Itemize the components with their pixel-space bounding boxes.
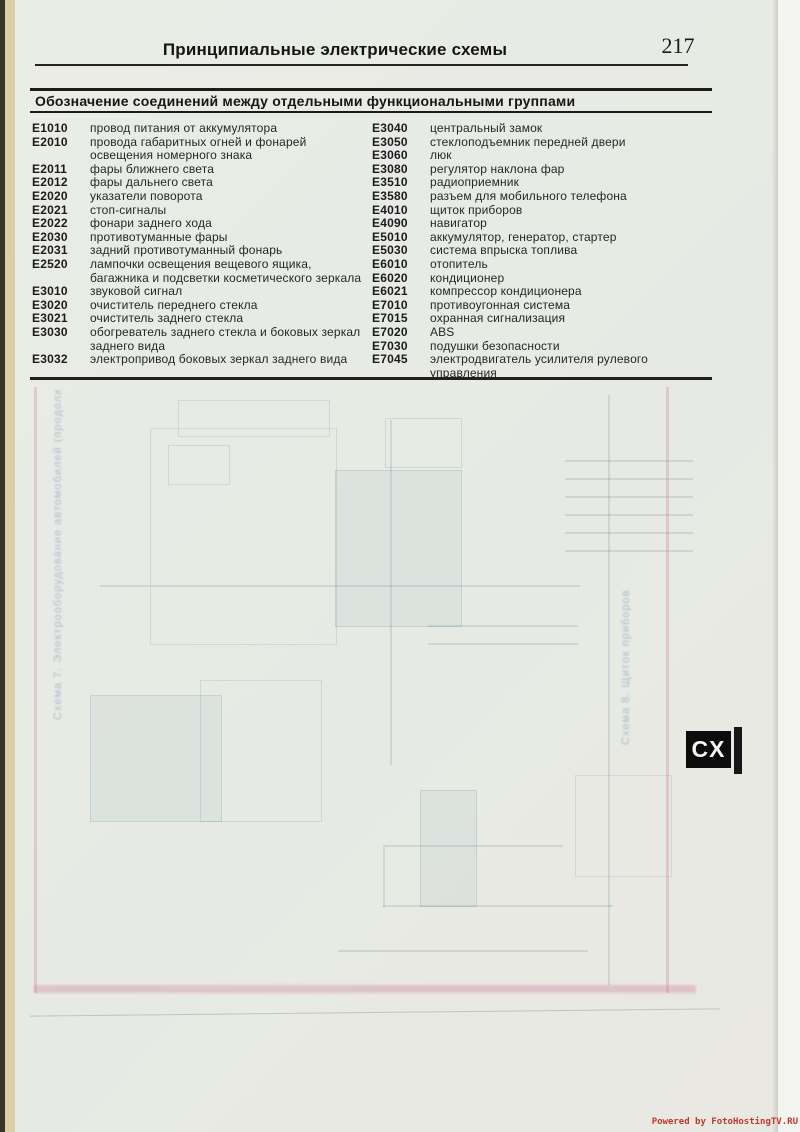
ghost-wire [390,420,392,765]
ghost-wire [565,514,693,516]
connection-description: фары ближнего света [90,163,366,177]
connection-code: E7020 [372,326,430,340]
table-row: E2022фонари заднего хода [32,217,366,231]
table-row: E3030обогреватель заднего стекла и боков… [32,326,366,353]
connection-description: радиоприемник [430,176,712,190]
table-row: E2030противотуманные фары [32,231,366,245]
table-row: E5010аккумулятор, генератор, стартер [372,231,712,245]
section-divider-top [30,88,712,91]
connection-code: E2012 [32,176,90,190]
connection-description: кондиционер [430,272,712,286]
table-row: E5030система впрыска топлива [372,244,712,258]
ghost-vertical-text-right: Схема 8. Щиток приборов [620,555,632,745]
table-row: E3580разъем для мобильного телефона [372,190,712,204]
page-number: 217 [648,33,708,59]
connection-description: очиститель заднего стекла [90,312,366,326]
connection-code: E3580 [372,190,430,204]
connection-code: E7010 [372,299,430,313]
connection-legend-table: E1010провод питания от аккумулятораE2010… [32,122,712,380]
section-title: Обозначение соединений между отдельными … [35,93,711,109]
ghost-wire [383,905,613,907]
table-row: E7030подушки безопасности [372,340,712,354]
ghost-wire [383,847,385,907]
bleedthrough-schematic: Схема 7. Электрооборудование автомобилей… [28,385,720,1013]
legend-divider-bottom [30,377,712,380]
connection-code: E2030 [32,231,90,245]
connection-code: E3040 [372,122,430,136]
connection-description: очиститель переднего стекла [90,299,366,313]
ghost-wire [565,550,693,552]
table-row: E6021компрессор кондиционера [372,285,712,299]
connection-code: E3510 [372,176,430,190]
table-row: E3060люк [372,149,712,163]
connection-description: фонари заднего хода [90,217,366,231]
table-row: E3032электропривод боковых зеркал заднег… [32,353,366,367]
legend-column-left: E1010провод питания от аккумулятораE2010… [32,122,366,380]
connection-description: провода габаритных огней и фонарей освещ… [90,136,366,163]
connection-code: E2020 [32,190,90,204]
table-row: E2010провода габаритных огней и фонарей … [32,136,366,163]
ghost-wire [338,950,588,952]
connection-description: электропривод боковых зеркал заднего вид… [90,353,366,367]
connection-code: E2010 [32,136,90,163]
connection-description: навигатор [430,217,712,231]
ghost-frame-left [34,387,37,993]
ghost-box [385,418,462,468]
connection-description: охранная сигнализация [430,312,712,326]
table-row: E2012фары дальнего света [32,176,366,190]
ghost-wire [565,532,693,534]
connection-description: ABS [430,326,712,340]
connection-description: разъем для мобильного телефона [430,190,712,204]
ghost-box [335,470,462,627]
connection-code: E2011 [32,163,90,177]
connection-code: E3032 [32,353,90,367]
ghost-vertical-text-left: Схема 7. Электрооборудование автомобилей… [52,390,64,720]
connection-code: E3010 [32,285,90,299]
connection-description: задний противотуманный фонарь [90,244,366,258]
header-divider [35,64,688,66]
ghost-wire [608,395,610,985]
table-row: E3040центральный замок [372,122,712,136]
connection-code: E5010 [372,231,430,245]
ghost-wire [383,845,563,847]
scanned-manual-page: Принципиальные электрические схемы 217 О… [0,0,800,1132]
connection-code: E3050 [372,136,430,150]
ghost-frame-bottom [34,985,696,993]
connection-code: E3020 [32,299,90,313]
section-divider-bottom [30,111,712,113]
connection-code: E2022 [32,217,90,231]
table-row: E7020ABS [372,326,712,340]
table-row: E3050стеклоподъемник передней двери [372,136,712,150]
table-row: E4010щиток приборов [372,204,712,218]
table-row: E2020указатели поворота [32,190,366,204]
ghost-box [575,775,672,877]
table-row: E7010противоугонная система [372,299,712,313]
table-row: E3021очиститель заднего стекла [32,312,366,326]
connection-description: обогреватель заднего стекла и боковых зе… [90,326,366,353]
connection-code: E2021 [32,204,90,218]
table-row: E3010звуковой сигнал [32,285,366,299]
table-row: E3020очиститель переднего стекла [32,299,366,313]
connection-description: люк [430,149,712,163]
page-title: Принципиальные электрические схемы [35,40,635,60]
ghost-wire [100,585,580,587]
ghost-box [168,445,230,485]
connection-code: E4010 [372,204,430,218]
connection-code: E2520 [32,258,90,285]
connection-description: стеклоподъемник передней двери [430,136,712,150]
connection-description: щиток приборов [430,204,712,218]
table-row: E1010провод питания от аккумулятора [32,122,366,136]
hosting-watermark: Powered by FotoHostingTV.RU [556,1117,798,1127]
ghost-box [178,400,330,437]
connection-code: E3080 [372,163,430,177]
table-row: E3080регулятор наклона фар [372,163,712,177]
connection-description: противоугонная система [430,299,712,313]
connection-code: E3030 [32,326,90,353]
ghost-wire [428,643,578,645]
ghost-box [200,680,322,822]
section-thumb-tab: CX [686,731,731,768]
page-edge-mark [734,727,742,774]
table-row: E2031задний противотуманный фонарь [32,244,366,258]
table-row: E6020кондиционер [372,272,712,286]
ghost-wire [428,625,578,627]
connection-description: регулятор наклона фар [430,163,712,177]
legend-column-right: E3040центральный замокE3050стеклоподъемн… [372,122,712,380]
connection-code: E1010 [32,122,90,136]
connection-description: звуковой сигнал [90,285,366,299]
connection-code: E5030 [372,244,430,258]
connection-code: E7030 [372,340,430,354]
connection-description: компрессор кондиционера [430,285,712,299]
connection-description: подушки безопасности [430,340,712,354]
page-inner-edge [5,0,15,1132]
connection-description: система впрыска топлива [430,244,712,258]
table-row: E6010отопитель [372,258,712,272]
connection-code: E4090 [372,217,430,231]
connection-code: E3060 [372,149,430,163]
table-row: E4090навигатор [372,217,712,231]
connection-code: E2031 [32,244,90,258]
connection-description: указатели поворота [90,190,366,204]
connection-description: отопитель [430,258,712,272]
scan-margin [778,0,800,1132]
connection-description: провод питания от аккумулятора [90,122,366,136]
ghost-wire [565,460,693,462]
connection-description: фары дальнего света [90,176,366,190]
connection-description: противотуманные фары [90,231,366,245]
ghost-wire [565,478,693,480]
connection-code: E6021 [372,285,430,299]
table-row: E7015охранная сигнализация [372,312,712,326]
ghost-wire [565,496,693,498]
connection-description: центральный замок [430,122,712,136]
connection-description: лампочки освещения вещевого ящика, багаж… [90,258,366,285]
connection-code: E7015 [372,312,430,326]
connection-code: E6010 [372,258,430,272]
table-row: E2021стоп-сигналы [32,204,366,218]
table-row: E3510радиоприемник [372,176,712,190]
connection-description: аккумулятор, генератор, стартер [430,231,712,245]
connection-description: стоп-сигналы [90,204,366,218]
connection-code: E6020 [372,272,430,286]
ghost-box [420,790,477,907]
connection-code: E3021 [32,312,90,326]
table-row: E2520лампочки освещения вещевого ящика, … [32,258,366,285]
table-row: E2011фары ближнего света [32,163,366,177]
